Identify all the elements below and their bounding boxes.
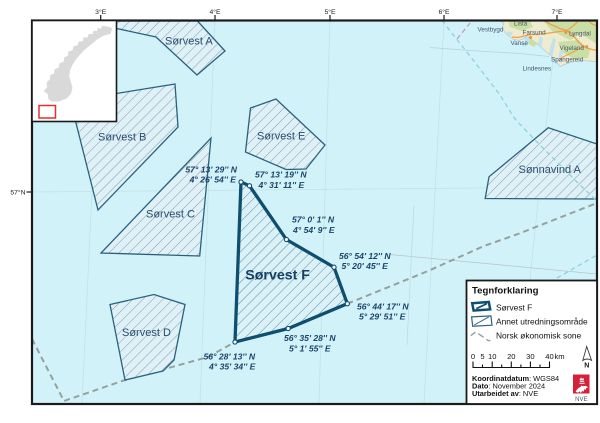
svg-text:Annet utredningsområde: Annet utredningsområde	[496, 317, 588, 327]
svg-text:56° 54' 12'' N: 56° 54' 12'' N	[339, 251, 391, 261]
svg-text:30: 30	[526, 352, 534, 361]
svg-text:0: 0	[471, 352, 475, 361]
svg-text:56° 35' 28'' N: 56° 35' 28'' N	[284, 333, 336, 343]
svg-text:N: N	[584, 363, 589, 370]
svg-text:57° 0' 1'' N: 57° 0' 1'' N	[292, 215, 335, 225]
svg-text:Sørvest F: Sørvest F	[496, 303, 532, 313]
svg-text:4° 31' 11'' E: 4° 31' 11'' E	[258, 180, 305, 190]
svg-text:Farsund: Farsund	[523, 30, 547, 37]
svg-text:4°E: 4°E	[209, 8, 220, 16]
svg-text:Sørvest E: Sørvest E	[257, 131, 305, 143]
svg-text:3°E: 3°E	[95, 8, 106, 16]
svg-text:Sørvest F: Sørvest F	[245, 268, 310, 284]
svg-text:4° 35' 34'' E: 4° 35' 34'' E	[208, 362, 256, 372]
svg-text:4° 54' 9'' E: 4° 54' 9'' E	[292, 225, 335, 235]
svg-text:56° 44' 17'' N: 56° 44' 17'' N	[357, 302, 409, 312]
svg-text:Vanse: Vanse	[511, 40, 529, 47]
svg-text:5° 20' 45'' E: 5° 20' 45'' E	[342, 261, 389, 271]
svg-text:Sørvest B: Sørvest B	[98, 132, 146, 144]
svg-text:20: 20	[507, 352, 515, 361]
svg-text:57° 13' 29'' N: 57° 13' 29'' N	[185, 165, 237, 175]
svg-text:57°N: 57°N	[10, 189, 25, 197]
svg-text:5°E: 5°E	[324, 8, 335, 16]
svg-text:7°E: 7°E	[551, 8, 562, 16]
svg-text:Lyngdal: Lyngdal	[569, 31, 591, 38]
svg-text:km: km	[554, 352, 564, 361]
svg-text:5° 1' 55'' E: 5° 1' 55'' E	[289, 344, 331, 354]
svg-text:6°E: 6°E	[438, 8, 449, 16]
svg-text:Vigeland: Vigeland	[560, 45, 585, 52]
svg-text:4° 26' 54'' E: 4° 26' 54'' E	[189, 175, 237, 185]
svg-text:57° 13' 19'' N: 57° 13' 19'' N	[255, 170, 307, 180]
svg-text:NVE: NVE	[575, 397, 587, 403]
svg-text:Utarbeidet av: NVE: Utarbeidet av: NVE	[472, 389, 538, 398]
svg-text:Norsk økonomisk sone: Norsk økonomisk sone	[496, 331, 582, 341]
svg-text:56° 28' 13'' N: 56° 28' 13'' N	[204, 352, 256, 362]
svg-text:Sørvest A: Sørvest A	[165, 36, 213, 48]
svg-text:Sørvest D: Sørvest D	[122, 327, 171, 339]
svg-text:Sørvest C: Sørvest C	[146, 209, 195, 221]
svg-text:40: 40	[545, 352, 553, 361]
svg-text:5° 29' 51'' E: 5° 29' 51'' E	[359, 312, 406, 322]
svg-text:Tegnforklaring: Tegnforklaring	[472, 286, 539, 297]
svg-text:10: 10	[488, 352, 496, 361]
svg-text:5: 5	[480, 352, 484, 361]
svg-text:Vestbygd: Vestbygd	[478, 27, 504, 34]
svg-text:Spangereid: Spangereid	[551, 57, 584, 64]
svg-text:Lindesnes: Lindesnes	[523, 66, 552, 73]
svg-text:Sønnavind A: Sønnavind A	[519, 164, 582, 176]
